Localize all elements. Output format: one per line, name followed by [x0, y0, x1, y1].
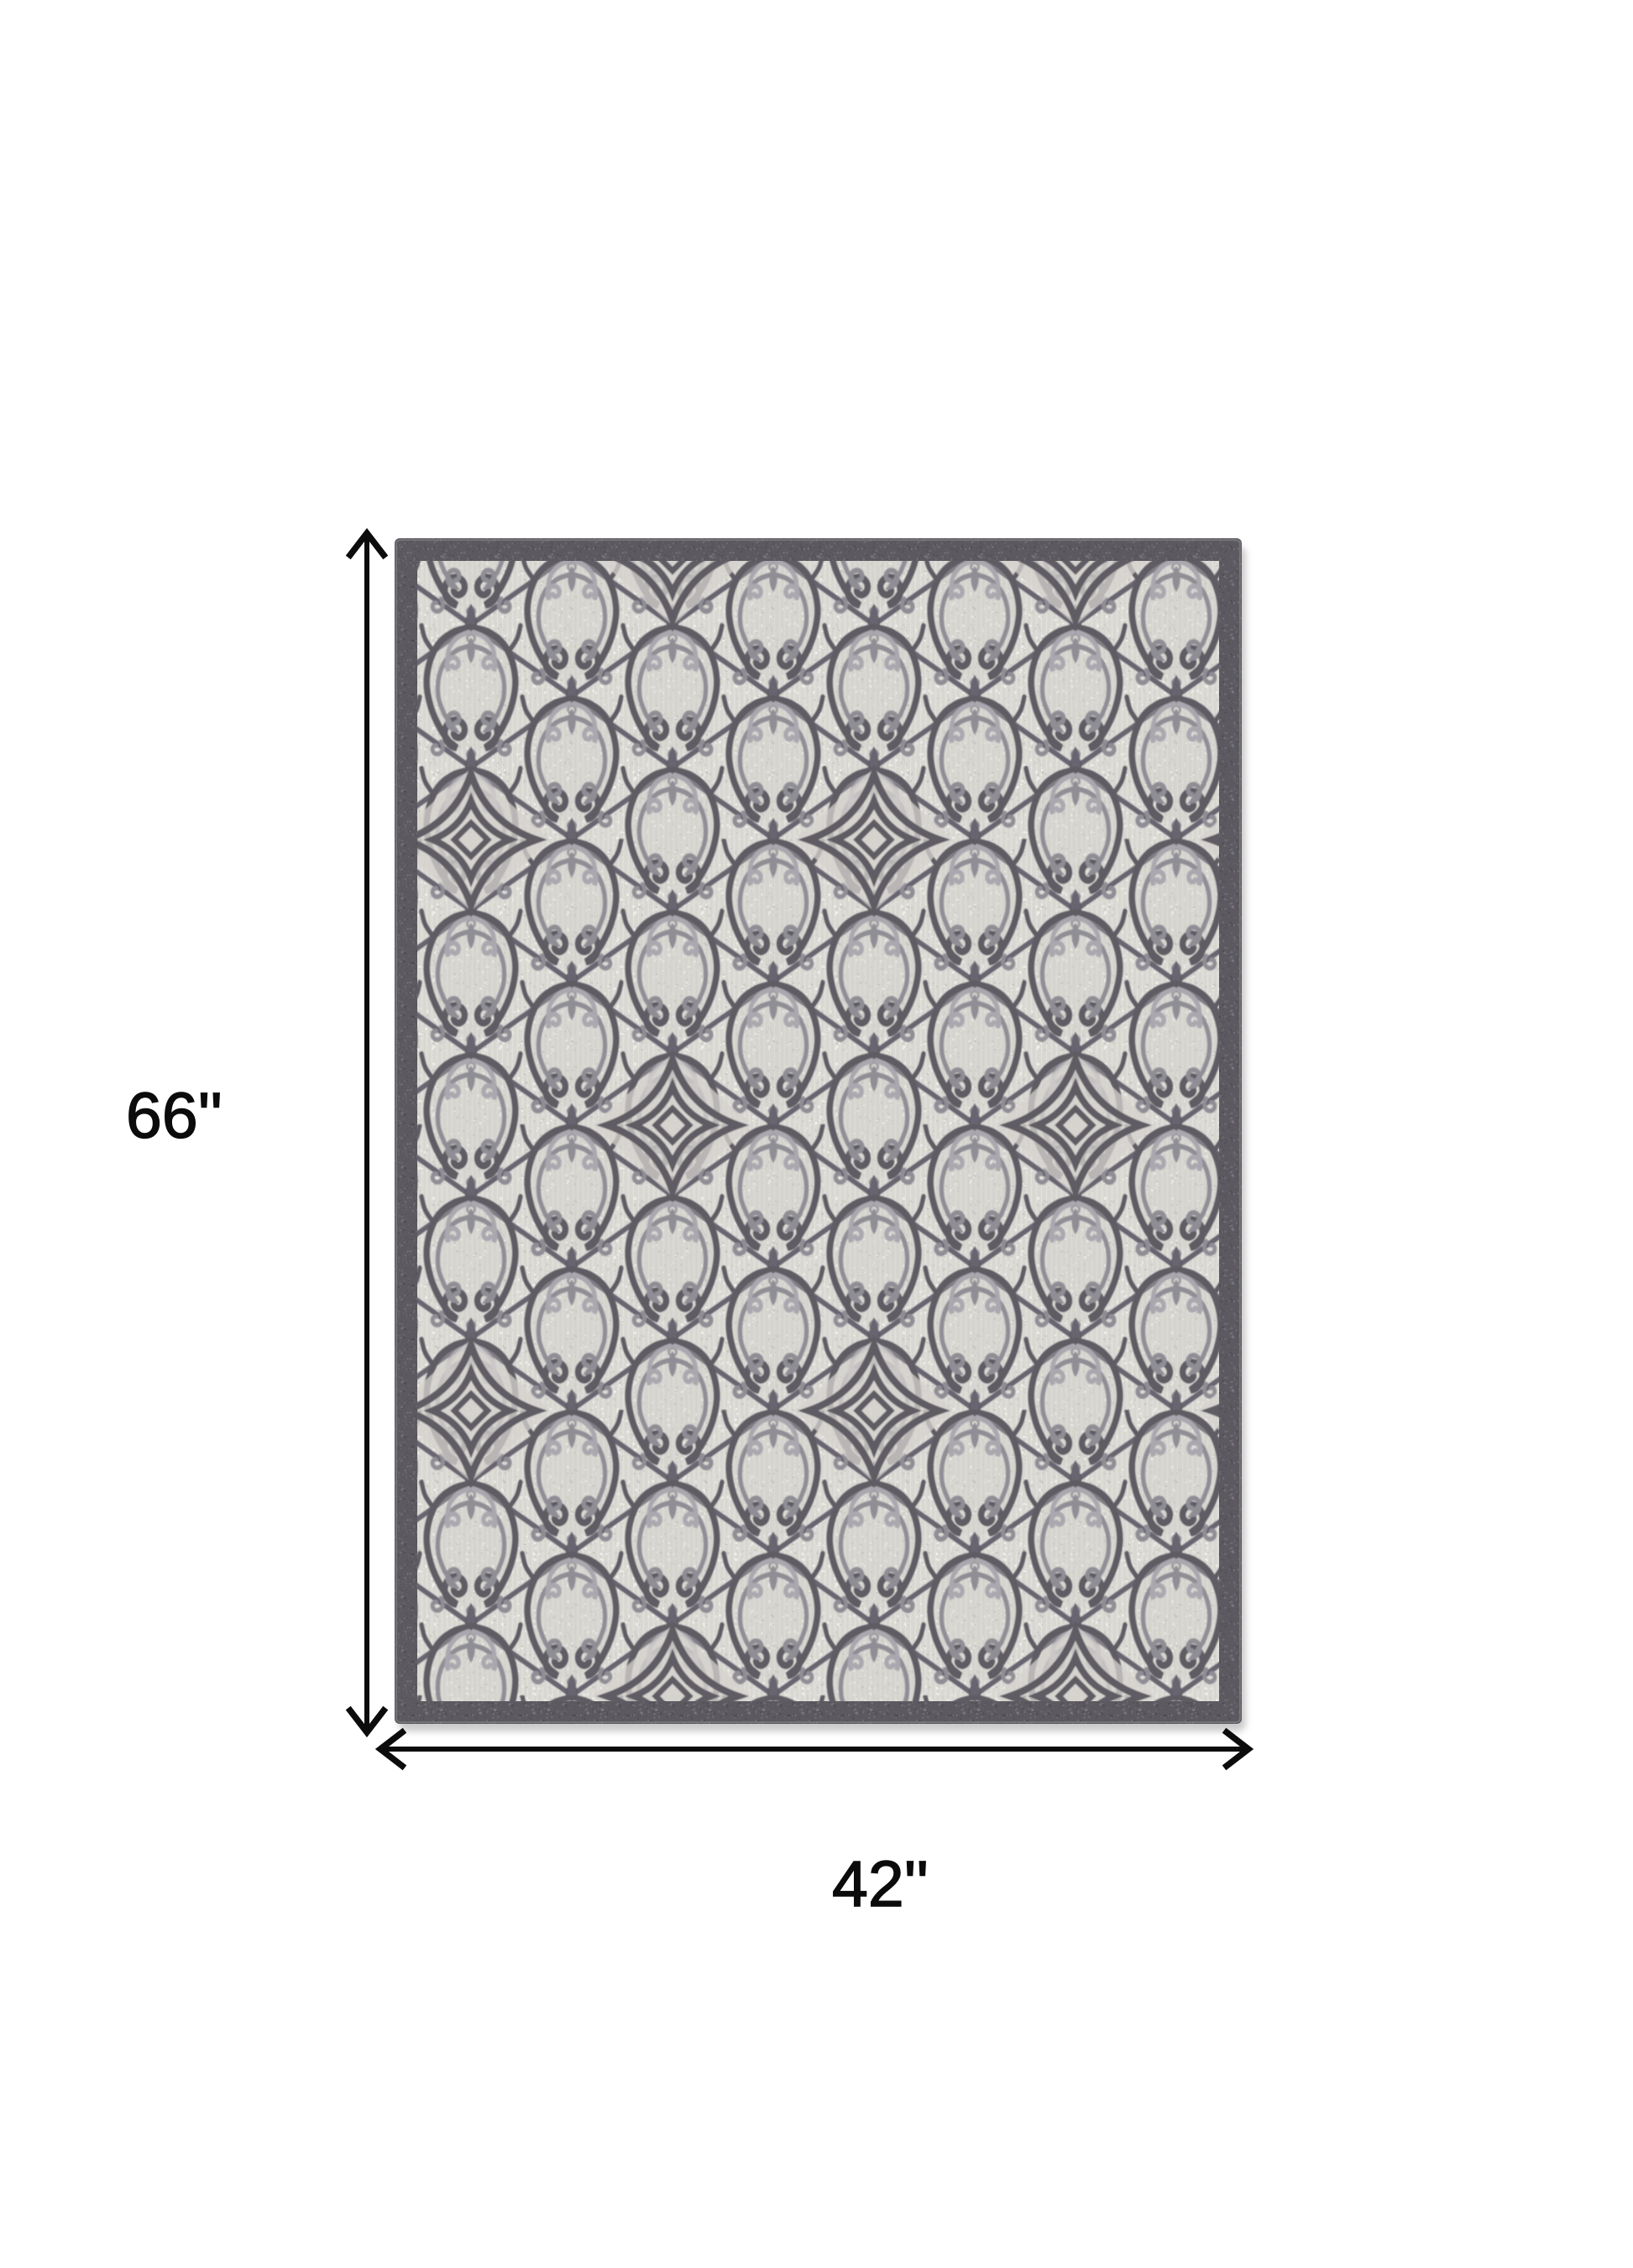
svg-text:66'': 66'': [126, 1080, 222, 1152]
svg-text:42'': 42'': [832, 1848, 929, 1920]
